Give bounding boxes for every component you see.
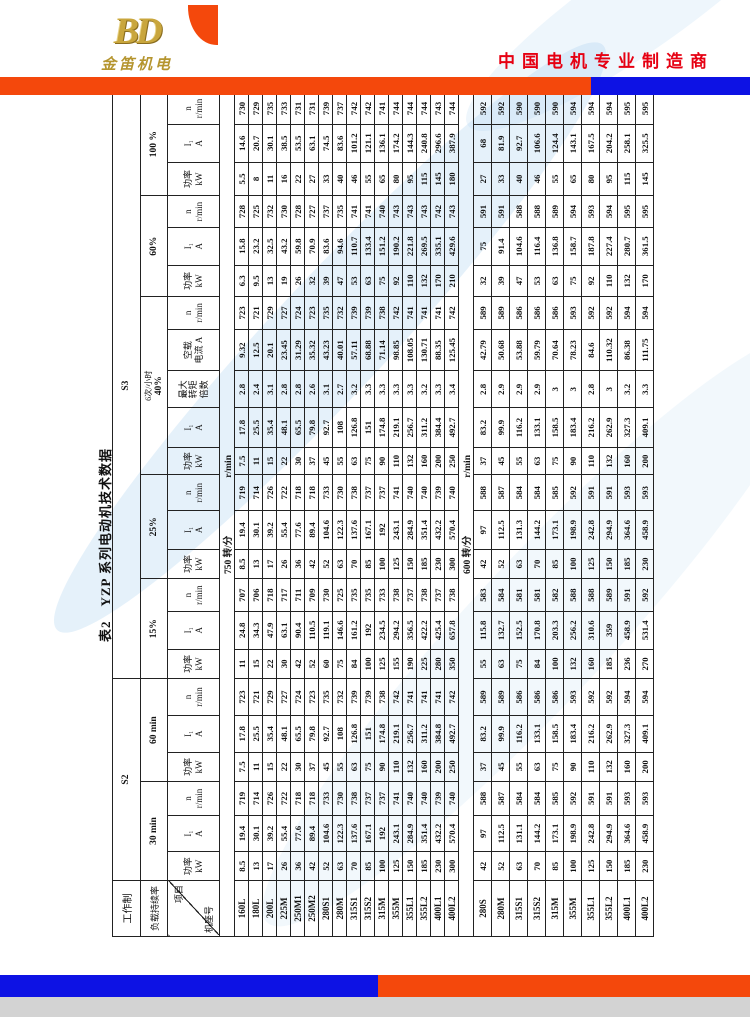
data-cell: 284.9 [403,511,417,550]
data-cell: 23.45 [277,329,291,371]
data-cell: 741 [431,297,445,330]
data-cell: 243.1 [389,511,403,550]
data-cell: 88.35 [431,329,445,371]
data-cell: 104.6 [319,511,333,550]
data-cell: 75 [375,265,389,297]
data-cell: 729 [249,93,263,125]
data-cell: 730 [235,93,249,125]
data-cell: 3 [546,371,564,408]
data-cell: 101.2 [347,124,361,162]
data-cell: 22 [263,649,277,679]
data-cell: 100 [375,852,389,881]
data-cell: 150 [403,852,417,881]
data-cell: 116.2 [510,408,528,448]
table-row: 355L2185351.4740160311.2741225422.273818… [417,93,431,937]
data-cell: 725 [333,579,347,612]
data-cell: 198.9 [564,511,582,550]
col-header: 功率kW [168,447,220,475]
data-cell: 294.9 [600,815,618,852]
data-cell: 592 [564,475,582,511]
data-cell: 590 [546,93,564,125]
data-cell: 65.5 [291,408,305,448]
model-name: 280M [492,880,510,936]
data-cell: 131.3 [510,511,528,550]
col-header: I₁A [168,227,220,265]
data-cell: 45 [492,447,510,475]
data-cell: 743 [445,196,459,228]
data-cell: 133.1 [528,715,546,752]
data-cell: 40 [333,162,347,196]
model-name: 315S1 [510,880,528,936]
data-cell: 167.1 [361,815,375,852]
data-cell: 744 [417,93,431,125]
data-cell: 32.5 [263,227,277,265]
data-cell: 98.85 [389,329,403,371]
data-cell: 75 [361,752,375,782]
page-title: 表2 YZP 系列电动机技术数据 [95,92,112,937]
data-cell: 59.79 [528,329,546,371]
data-cell: 108.05 [403,329,417,371]
data-cell: 90 [564,447,582,475]
data-cell: 89.4 [305,815,319,852]
data-cell: 741 [403,679,417,716]
data-cell: 723 [235,297,249,330]
data-cell: 59.8 [291,227,305,265]
data-cell: 2.8 [235,371,249,408]
data-cell: 42.79 [474,329,492,371]
data-cell: 26 [277,549,291,579]
data-cell: 595 [618,93,636,125]
data-cell: 70.64 [546,329,564,371]
data-cell: 256.7 [403,715,417,752]
data-cell: 42 [474,852,492,881]
model-name: 355L1 [403,880,417,936]
table-row: 315S270144.258463133.158684170.858170144… [528,93,546,937]
data-cell: 3.3 [403,371,417,408]
data-cell: 221.8 [403,227,417,265]
data-cell: 132 [618,265,636,297]
data-cell: 97 [474,511,492,550]
data-cell: 43.2 [277,227,291,265]
data-cell: 22 [277,447,291,475]
data-cell: 8.5 [235,549,249,579]
data-cell: 174.8 [375,715,389,752]
data-cell: 737 [403,579,417,612]
data-cell: 161.2 [347,611,361,649]
data-cell: 85 [546,852,564,881]
table-row: 200L1739.27261535.47292247.97181739.2726… [263,93,277,937]
data-cell: 425.4 [431,611,445,649]
data-cell: 25.5 [249,715,263,752]
data-cell: 739 [431,782,445,816]
data-cell: 85 [546,549,564,579]
data-cell: 739 [347,297,361,330]
model-name: 225M [277,880,291,936]
data-cell: 717 [277,579,291,612]
data-cell: 38.5 [277,124,291,162]
data-cell: 727 [305,196,319,228]
data-cell: 592 [564,782,582,816]
data-cell: 70 [347,549,361,579]
data-cell: 124.4 [546,124,564,162]
table-row: 400L1185364.6593160327.3594236458.959118… [618,93,636,937]
duty-60 min: 60 min [141,679,168,782]
data-cell: 132 [564,649,582,679]
data-cell: 185 [417,852,431,881]
data-cell: 11 [249,752,263,782]
data-cell: 7.5 [235,447,249,475]
data-cell: 6.3 [235,265,249,297]
data-cell: 106.6 [528,124,546,162]
data-cell: 99.9 [492,408,510,448]
data-cell: 594 [564,93,582,125]
data-cell: 30.1 [249,815,263,852]
data-cell: 742 [431,196,445,228]
data-cell: 740 [445,782,459,816]
data-cell: 586 [546,679,564,716]
data-cell: 741 [347,196,361,228]
page-edge-strip [0,997,750,1017]
data-cell: 742 [389,679,403,716]
data-cell: 83.6 [333,124,347,162]
duty-40%: 6次/小时40% [141,297,168,475]
data-cell: 13 [249,549,263,579]
duty-15%: 15% [141,579,168,679]
data-cell: 589 [492,679,510,716]
data-cell: 2.6 [305,371,319,408]
data-cell: 594 [600,196,618,228]
data-cell: 594 [636,297,654,330]
data-cell: 740 [417,475,431,511]
data-cell: 80 [582,162,600,196]
data-cell: 384.4 [431,408,445,448]
data-cell: 70.9 [305,227,319,265]
data-cell: 738 [347,475,361,511]
data-cell: 731 [305,93,319,125]
header-slogan: 中国电机专业制造商 [498,47,714,72]
data-cell: 17.8 [235,408,249,448]
data-cell: 116.2 [510,715,528,752]
data-cell: 250 [445,752,459,782]
data-cell: 17.8 [235,715,249,752]
data-cell: 92.7 [319,408,333,448]
data-cell: 722 [277,782,291,816]
data-cell: 115.8 [474,611,492,649]
data-cell: 63 [528,447,546,475]
data-cell: 110.7 [347,227,361,265]
data-cell: 174.2 [389,124,403,162]
data-cell: 146.6 [333,611,347,649]
model-name: 280S1 [319,880,333,936]
data-cell: 742 [361,93,375,125]
data-cell: 125.45 [445,329,459,371]
data-cell: 236 [618,649,636,679]
data-cell: 167.5 [582,124,600,162]
speed-separator: 600 转/分r/min [459,93,474,937]
data-cell: 356.5 [403,611,417,649]
col-header: I₁A [168,611,220,649]
data-cell: 723 [305,679,319,716]
data-cell: 724 [291,297,305,330]
data-cell: 53 [347,265,361,297]
data-cell: 55 [546,162,564,196]
data-cell: 588 [528,196,546,228]
data-cell: 327.3 [618,715,636,752]
data-cell: 100 [564,852,582,881]
duty-25%: 25% [141,475,168,579]
data-cell: 126.8 [347,408,361,448]
col-header: I₁A [168,715,220,752]
data-cell: 739 [347,679,361,716]
data-cell: 744 [389,93,403,125]
col-header: nr/min [168,93,220,125]
data-cell: 721 [249,679,263,716]
data-cell: 144.2 [528,511,546,550]
data-cell: 46 [528,162,546,196]
data-cell: 583 [474,579,492,612]
data-cell: 91.4 [492,227,510,265]
data-cell: 2.9 [492,371,510,408]
data-cell: 737 [375,475,389,511]
data-cell: 158.5 [546,715,564,752]
data-cell: 719 [235,782,249,816]
data-cell: 3.3 [389,371,403,408]
data-cell: 707 [235,579,249,612]
data-cell: 589 [492,297,510,330]
data-cell: 3 [600,371,618,408]
data-cell: 111.75 [636,329,654,371]
data-cell: 725 [249,196,263,228]
corner-cell: 项目机座号 [168,880,220,936]
data-cell: 492.7 [445,715,459,752]
data-cell: 26 [291,265,305,297]
data-cell: 170 [431,265,445,297]
data-cell: 210 [445,265,459,297]
data-cell: 726 [263,475,277,511]
data-cell: 2.8 [474,371,492,408]
data-cell: 137.6 [347,815,361,852]
data-cell: 75 [546,447,564,475]
data-cell: 45 [319,752,333,782]
data-cell: 27 [305,162,319,196]
data-cell: 110 [600,265,618,297]
data-cell: 25.5 [249,408,263,448]
data-cell: 588 [474,475,492,511]
data-cell: 47 [333,265,347,297]
data-cell: 531.4 [636,611,654,649]
col-header: 功率kW [168,852,220,881]
data-cell: 735 [333,196,347,228]
data-cell: 65.5 [291,715,305,752]
data-cell: 75 [474,227,492,265]
data-cell: 732 [333,679,347,716]
data-cell: 588 [582,579,600,612]
data-cell: 719 [235,475,249,511]
data-cell: 100 [375,549,389,579]
data-cell: 739 [431,475,445,511]
data-cell: 75 [510,649,528,679]
data-cell: 125 [582,852,600,881]
data-cell: 167.1 [361,511,375,550]
data-cell: 122.3 [333,511,347,550]
data-cell: 723 [235,679,249,716]
data-cell: 581 [510,579,528,612]
data-cell: 587 [492,475,510,511]
col-header: 功率kW [168,265,220,297]
data-cell: 78.23 [564,329,582,371]
data-cell: 729 [263,679,277,716]
data-cell: 581 [528,579,546,612]
data-cell: 586 [510,679,528,716]
data-cell: 125 [375,649,389,679]
data-cell: 37 [305,447,319,475]
data-cell: 60 [319,649,333,679]
data-cell: 23.2 [249,227,263,265]
data-cell: 364.6 [618,815,636,852]
data-cell: 711 [291,579,305,612]
data-cell: 122.3 [333,815,347,852]
data-cell: 115 [417,162,431,196]
data-cell: 594 [618,679,636,716]
data-cell: 595 [636,93,654,125]
table-row: 315M10019273790174.8738125234.5733100192… [375,93,389,937]
data-cell: 262.9 [600,715,618,752]
data-cell: 590 [510,93,528,125]
data-cell: 125 [389,549,403,579]
data-cell: 65 [564,162,582,196]
data-cell: 230 [431,549,445,579]
data-cell: 422.2 [417,611,431,649]
data-cell: 63 [361,265,375,297]
data-cell: 3.1 [319,371,333,408]
data-cell: 593 [618,475,636,511]
col-header: I₁A [168,408,220,448]
data-cell: 3.3 [361,371,375,408]
data-cell: 730 [319,579,333,612]
data-cell: 136.8 [546,227,564,265]
data-cell: 595 [618,196,636,228]
data-cell: 110 [403,265,417,297]
model-name: 400L1 [618,880,636,936]
data-cell: 593 [636,475,654,511]
data-cell: 53.5 [291,124,305,162]
data-cell: 727 [277,297,291,330]
data-cell: 586 [528,679,546,716]
logo-company-name: 金笛机电 [78,53,196,74]
data-cell: 83.2 [474,408,492,448]
data-cell: 84 [528,649,546,679]
model-name: 315M [375,880,389,936]
data-cell: 589 [600,579,618,612]
motor-spec-table: 工作制S2S3负载持续率30 min60 min15%25%6次/小时40%60… [112,92,654,937]
data-cell: 744 [445,93,459,125]
data-cell: 739 [361,679,375,716]
data-cell: 192 [375,511,389,550]
data-cell: 740 [445,475,459,511]
data-cell: 593 [582,196,600,228]
data-cell: 718 [291,475,305,511]
data-cell: 55.4 [277,815,291,852]
data-cell: 593 [564,297,582,330]
model-name: 280M [333,880,347,936]
data-cell: 42 [305,852,319,881]
data-cell: 592 [636,579,654,612]
data-cell: 94.6 [333,227,347,265]
data-cell: 589 [474,679,492,716]
data-cell: 151.2 [375,227,389,265]
data-cell: 409.1 [636,408,654,448]
data-cell: 743 [389,196,403,228]
data-cell: 19.4 [235,511,249,550]
data-cell: 53.88 [510,329,528,371]
table-row: 225M2655.47222248.17273063.17172655.4722… [277,93,291,937]
data-cell: 68 [474,124,492,162]
data-cell: 92 [389,265,403,297]
data-cell: 185 [600,649,618,679]
data-cell: 200 [636,752,654,782]
data-cell: 730 [333,782,347,816]
data-cell: 83.2 [474,715,492,752]
data-cell: 95 [600,162,618,196]
col-header: 功率kW [168,752,220,782]
data-cell: 739 [319,93,333,125]
data-cell: 350 [445,649,459,679]
data-cell: 85 [361,549,375,579]
data-cell: 30.1 [263,124,277,162]
data-cell: 110 [389,752,403,782]
data-cell: 3.3 [431,371,445,408]
model-name: 355M [389,880,403,936]
data-cell: 63 [333,549,347,579]
table-row: 355L1150284.9740132256.7741190356.573715… [403,93,417,937]
col-header: nr/min [168,679,220,716]
model-name: 400L1 [431,880,445,936]
model-name: 315S2 [361,880,375,936]
data-cell: 80 [389,162,403,196]
data-cell: 11 [235,649,249,679]
data-cell: 284.9 [403,815,417,852]
data-cell: 743 [431,93,445,125]
data-cell: 75 [333,649,347,679]
table-row: 355M100198.959290183.4593132256.25881001… [564,93,582,937]
table-row: 315M85173.158575158.5586100203.358285173… [546,93,564,937]
data-cell: 20.7 [249,124,263,162]
data-cell: 130.71 [417,329,431,371]
company-logo: BD 金笛机电 [78,12,196,74]
data-cell: 63.1 [277,611,291,649]
data-cell: 20.1 [263,329,277,371]
data-cell: 133.1 [528,408,546,448]
data-cell: 740 [375,196,389,228]
data-cell: 592 [582,297,600,330]
data-cell: 737 [375,782,389,816]
data-cell: 730 [333,475,347,511]
data-cell: 65 [375,162,389,196]
data-cell: 584 [492,579,510,612]
logo-monogram-icon: BD [78,12,196,52]
model-name: 250M2 [305,880,319,936]
data-cell: 225 [417,649,431,679]
data-cell: 243.1 [389,815,403,852]
data-cell: 144.2 [528,815,546,852]
data-cell: 31.29 [291,329,305,371]
data-cell: 192 [375,815,389,852]
model-name: 160L [235,880,249,936]
data-cell: 70 [528,852,546,881]
data-cell: 185 [618,549,636,579]
data-cell: 458.9 [636,511,654,550]
data-cell: 737 [319,196,333,228]
